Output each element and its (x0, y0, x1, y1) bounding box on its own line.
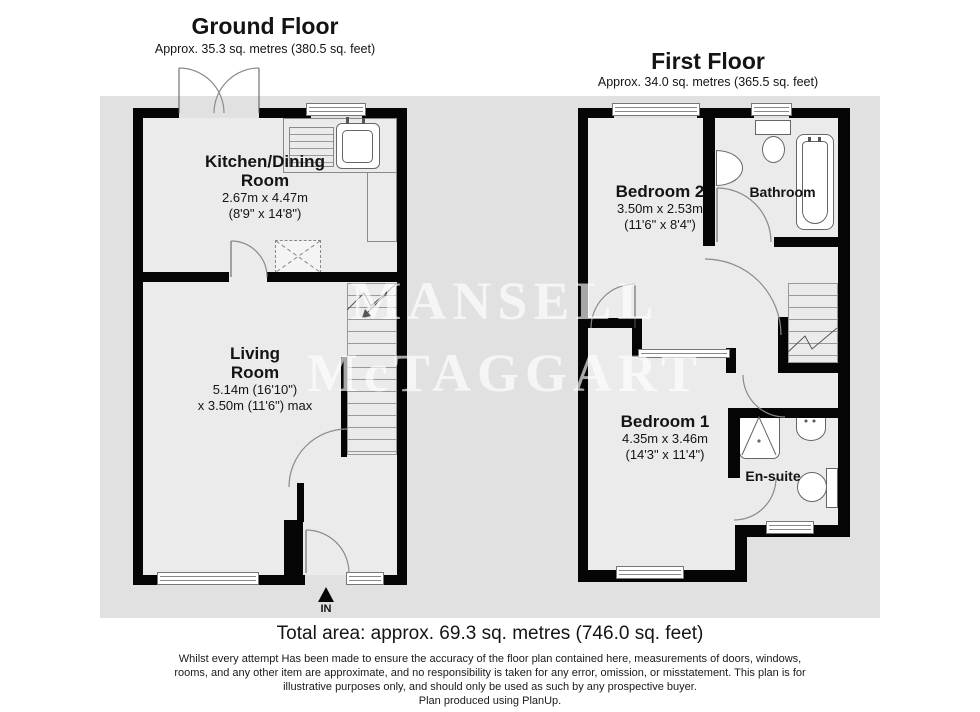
ff-bathroom-wall-bottom (774, 237, 838, 247)
total-area-text: Total area: approx. 69.3 sq. metres (746… (190, 623, 790, 645)
bedroom1-dims-metric: 4.35m x 3.46m (580, 431, 750, 447)
ff-bathroom-window (751, 103, 792, 116)
first-floor-area: Approx. 34.0 sq. metres (365.5 sq. feet) (548, 75, 868, 89)
gf-wall-top-mid (259, 108, 311, 118)
living-name-line2: Room (155, 363, 355, 382)
ff-stairs (788, 283, 838, 363)
ff-wall-top-mid (697, 108, 754, 118)
living-name-line1: Living (155, 344, 355, 363)
ff-bed2-wall-bottom (578, 318, 640, 328)
kitchen-dims-metric: 2.67m x 4.47m (165, 190, 365, 206)
first-floor-interior-lower (588, 525, 735, 570)
disclaimer-line: Whilst every attempt Has been made to en… (90, 652, 890, 667)
bathroom-toilet-cistern (755, 120, 791, 135)
gf-entry-wall-stub (284, 520, 303, 575)
sink-tap-icon (362, 117, 365, 124)
entrance-arrow-icon (318, 587, 334, 602)
kitchen-name-line2: Room (165, 171, 365, 190)
kitchen-worktop-side (367, 172, 397, 242)
bedroom2-name: Bedroom 2 (575, 182, 745, 201)
gf-wall-bottom-right (381, 575, 407, 585)
bathtub-inner (802, 141, 828, 224)
ensuite-label: En-suite (733, 468, 813, 484)
ensuite-toilet-cistern (826, 468, 838, 508)
ff-wall-right (838, 108, 850, 537)
living-dims-line2: x 3.50m (11'6") max (155, 398, 355, 414)
disclaimer-line: illustrative purposes only, and should o… (90, 680, 890, 695)
gf-entry-window (346, 572, 384, 585)
bath-tap-icon (808, 137, 811, 142)
ff-under-stair-wall (778, 363, 838, 373)
gf-wall-left (133, 108, 143, 585)
gf-wall-bottom-mid (256, 575, 305, 585)
gf-wall-bottom-left (133, 575, 160, 585)
first-floor-title: First Floor (573, 48, 843, 75)
bedroom1-name: Bedroom 1 (580, 412, 750, 431)
sink-tap-icon (346, 117, 349, 124)
ground-floor-area: Approx. 35.3 sq. metres (380.5 sq. feet) (105, 42, 425, 56)
kitchen-label: Kitchen/Dining Room 2.67m x 4.47m (8'9" … (165, 152, 365, 222)
ff-bed1-window (616, 566, 684, 579)
bath-tap-icon (818, 137, 821, 142)
gf-wall-divider-right (267, 272, 407, 282)
living-room-label: Living Room 5.14m (16'10") x 3.50m (11'6… (155, 344, 355, 414)
ensuite-basin (796, 416, 826, 441)
ground-floor-title: Ground Floor (130, 13, 400, 40)
bedroom2-dims-metric: 3.50m x 2.53m (575, 201, 745, 217)
kitchen-name-line1: Kitchen/Dining (165, 152, 365, 171)
living-dims-line1: 5.14m (16'10") (155, 382, 355, 398)
bedroom1-label: Bedroom 1 4.35m x 3.46m (14'3" x 11'4") (580, 412, 750, 463)
ff-wall-top-left (578, 108, 614, 118)
bathroom-toilet-bowl (762, 136, 785, 163)
bedroom2-dims-imperial: (11'6" x 8'4") (575, 217, 745, 233)
bedroom2-label: Bedroom 2 3.50m x 2.53m (11'6" x 8'4") (575, 182, 745, 233)
ff-ensuite-window (766, 521, 814, 534)
ff-landing-opening (638, 349, 730, 358)
gf-door-leaf-stub (297, 483, 304, 522)
entrance-label: IN (310, 603, 342, 615)
gf-wall-top-left (133, 108, 179, 118)
gf-wall-right (397, 108, 407, 585)
gf-hatched-void (275, 240, 321, 273)
bathroom-label: Bathroom (730, 184, 835, 200)
ff-wall-left (578, 108, 588, 582)
gf-kitchen-window (306, 103, 366, 116)
gf-wall-top-right (362, 108, 407, 118)
gf-living-window (157, 572, 259, 585)
gf-wall-divider-left (133, 272, 229, 282)
ff-bed2-window (612, 103, 700, 116)
bedroom1-dims-imperial: (14'3" x 11'4") (580, 447, 750, 463)
kitchen-dims-imperial: (8'9" x 14'8") (165, 206, 365, 222)
disclaimer-line: rooms, and any other item are approximat… (90, 666, 890, 681)
plan-credit-line: Plan produced using PlanUp. (90, 694, 890, 709)
floor-plan-page: Ground Floor Approx. 35.3 sq. metres (38… (0, 0, 980, 712)
